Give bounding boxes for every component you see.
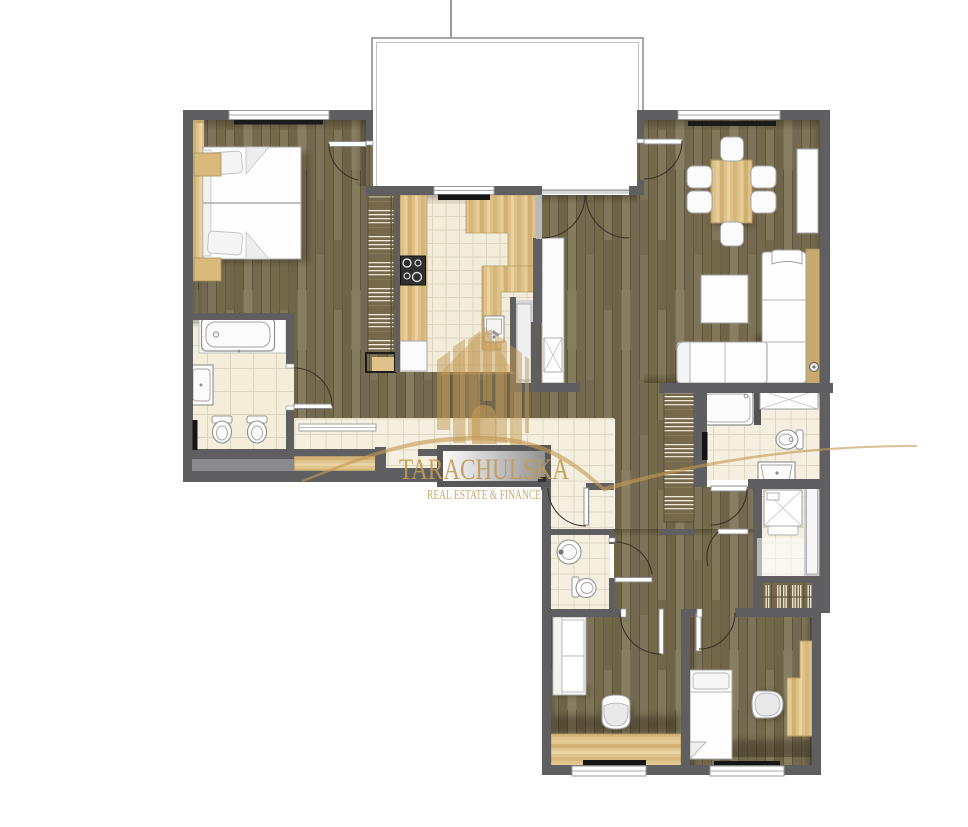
svg-text:TARACHULSKA: TARACHULSKA [399, 453, 569, 486]
svg-text:REAL ESTATE & FINANCE: REAL ESTATE & FINANCE [427, 488, 541, 503]
